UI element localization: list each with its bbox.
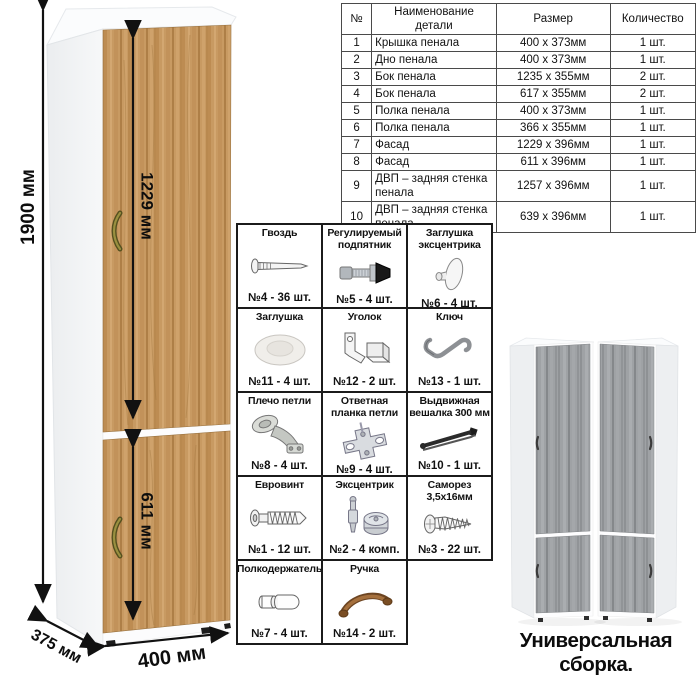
hardware-item-name: Эксцентрик	[334, 477, 394, 492]
hardware-item-name: Евровинт	[254, 477, 305, 492]
hardware-grid: Гвоздь№4 - 36 шт.Регулируемый подпятник№…	[236, 223, 493, 645]
hardware-item-name: Саморез 3,5х16мм	[408, 477, 491, 504]
table-cell: 617 х 355мм	[496, 86, 610, 103]
table-cell: 400 х 373мм	[496, 103, 610, 120]
hardware-item-name: Ручка	[349, 561, 380, 576]
parts-table-header-row: №Наименование деталиРазмерКоличество	[342, 4, 696, 35]
table-cell: 2 шт.	[610, 86, 696, 103]
table-cell: ДВП – задняя стенка пенала	[372, 171, 497, 202]
table-cell: 6	[342, 120, 372, 137]
table-cell: 8	[342, 154, 372, 171]
table-cell: 639 х 396мм	[496, 202, 610, 233]
table-row: 9ДВП – задняя стенка пенала1257 х 396мм1…	[342, 171, 696, 202]
parts-table-column-header: Размер	[496, 4, 610, 35]
table-cell: 1 шт.	[610, 137, 696, 154]
nail-icon	[249, 240, 311, 292]
lower-door-dimension-label: 611 мм	[138, 492, 157, 549]
hardware-item-count: №14 - 2 шт.	[333, 628, 396, 643]
hardware-item: Гвоздь№4 - 36 шт.	[236, 223, 323, 309]
table-cell: 7	[342, 137, 372, 154]
table-cell: 3	[342, 69, 372, 86]
table-cell: 2 шт.	[610, 69, 696, 86]
hardware-grid-row: Заглушка№11 - 4 шт.Уголок№12 - 2 шт.Ключ…	[236, 309, 493, 393]
table-cell: Фасад	[372, 154, 497, 171]
table-cell: 1235 х 355мм	[496, 69, 610, 86]
hardware-item-name: Ответная планка петли	[323, 393, 406, 420]
hardware-item: Плечо петли№8 - 4 шт.	[236, 391, 323, 477]
cabinet-illustration: 1900 мм 1229 мм 611 мм 375 мм 400 мм	[0, 0, 250, 683]
cap-icon	[252, 324, 308, 376]
hardware-item: Саморез 3,5х16мм№3 - 22 шт.	[406, 475, 493, 561]
table-cell: 366 х 355мм	[496, 120, 610, 137]
assembly-sheet: 1900 мм 1229 мм 611 мм 375 мм 400 мм №На…	[0, 0, 700, 683]
table-cell: Полка пенала	[372, 103, 497, 120]
depth-dimension-label: 375 мм	[28, 626, 84, 667]
table-cell: Бок пенала	[372, 69, 497, 86]
upper-door	[103, 25, 231, 432]
upper-door-dimension-label: 1229 мм	[138, 172, 157, 240]
table-cell: 1257 х 396мм	[496, 171, 610, 202]
table-cell: 611 х 396мм	[496, 154, 610, 171]
table-cell: 4	[342, 86, 372, 103]
gray-lower-handle-icon	[537, 565, 538, 577]
table-cell: 1 шт.	[610, 171, 696, 202]
hardware-item-count: №10 - 1 шт.	[418, 460, 481, 475]
hinge-plate-icon	[338, 420, 392, 464]
table-cell: Бок пенала	[372, 86, 497, 103]
hardware-item: Эксцентрик№2 - 4 комп.	[321, 475, 408, 561]
hardware-item-count: №3 - 22 шт.	[418, 544, 481, 559]
assembled-cabinet-left	[510, 338, 594, 622]
table-row: 3Бок пенала1235 х 355мм2 шт.	[342, 69, 696, 86]
hardware-item: Уголок№12 - 2 шт.	[321, 307, 408, 393]
table-cell: Фасад	[372, 137, 497, 154]
parts-table-column-header: Наименование детали	[372, 4, 497, 35]
hardware-item: Регулируемый подпятник№5 - 4 шт.	[321, 223, 408, 309]
hardware-item: Полкодержатель№7 - 4 шт.	[236, 559, 323, 645]
table-cell: 1229 х 396мм	[496, 137, 610, 154]
euro-screw-icon	[248, 492, 312, 544]
hardware-grid-row: Гвоздь№4 - 36 шт.Регулируемый подпятник№…	[236, 223, 493, 309]
hardware-item-count: №4 - 36 шт.	[248, 292, 311, 307]
table-cell: 1 шт.	[610, 202, 696, 233]
parts-table-body: 1Крышка пенала400 х 373мм1 шт.2Дно пенал…	[342, 35, 696, 233]
gray-lower-handle-icon	[650, 565, 651, 577]
hardware-grid-row: Евровинт№1 - 12 шт.Эксцентрик№2 - 4 комп…	[236, 477, 493, 561]
assembly-caption: Универсальная сборка.	[492, 629, 700, 677]
table-cell: 1 шт.	[610, 35, 696, 52]
table-cell: Дно пенала	[372, 52, 497, 69]
hinge-arm-icon	[251, 408, 309, 460]
lower-door	[103, 431, 230, 633]
table-row: 7Фасад1229 х 396мм1 шт.	[342, 137, 696, 154]
hardware-item-count: №2 - 4 комп.	[329, 544, 399, 559]
hardware-item-name: Уголок	[347, 309, 383, 324]
hardware-item: Ключ№13 - 1 шт.	[406, 307, 493, 393]
table-row: 6Полка пенала366 х 355мм1 шт.	[342, 120, 696, 137]
table-cell: 400 х 373мм	[496, 35, 610, 52]
pullout-hanger-icon	[419, 420, 481, 461]
hardware-item: Заглушка эксцентрика№6 - 4 шт.	[406, 223, 493, 309]
parts-table-column-header: Количество	[610, 4, 696, 35]
table-cell: 1	[342, 35, 372, 52]
hardware-grid-row: Плечо петли№8 - 4 шт.Ответная планка пет…	[236, 393, 493, 477]
assembled-cabinet-right	[598, 338, 678, 622]
hardware-item-name: Регулируемый подпятник	[323, 225, 406, 252]
hardware-item: Евровинт№1 - 12 шт.	[236, 475, 323, 561]
hardware-item-name: Гвоздь	[261, 225, 298, 240]
cabinet-side-panel	[47, 29, 103, 646]
parts-table-column-header: №	[342, 4, 372, 35]
table-row: 2Дно пенала400 х 373мм1 шт.	[342, 52, 696, 69]
hex-key-icon	[422, 324, 478, 376]
table-cell: Крышка пенала	[372, 35, 497, 52]
hardware-item-count: №7 - 4 шт.	[251, 628, 307, 643]
hardware-item-name: Выдвижная вешалка 300 мм	[408, 393, 491, 420]
gray-upper-handle-icon	[650, 437, 651, 449]
hardware-item: Ответная планка петли№9 - 4 шт.	[321, 391, 408, 477]
table-cell: 5	[342, 103, 372, 120]
table-cell: 1 шт.	[610, 52, 696, 69]
handle-icon	[335, 576, 395, 628]
width-dimension-label: 400 мм	[136, 642, 207, 673]
hardware-item-count: №11 - 4 шт.	[248, 376, 310, 391]
table-row: 1Крышка пенала400 х 373мм1 шт.	[342, 35, 696, 52]
table-cell: 2	[342, 52, 372, 69]
hardware-item-count: №8 - 4 шт.	[251, 460, 307, 475]
table-cell: 1 шт.	[610, 120, 696, 137]
assembled-cabinets-illustration	[492, 333, 700, 629]
corner-bracket-icon	[337, 324, 393, 376]
hardware-item-count: №12 - 2 шт.	[333, 376, 396, 391]
table-row: 5Полка пенала400 х 373мм1 шт.	[342, 103, 696, 120]
hardware-item: Выдвижная вешалка 300 мм№10 - 1 шт.	[406, 391, 493, 477]
hardware-item: Ручка№14 - 2 шт.	[321, 559, 408, 645]
table-cell: 400 х 373мм	[496, 52, 610, 69]
hardware-item-name: Заглушка	[255, 309, 304, 324]
table-row: 4Бок пенала617 х 355мм2 шт.	[342, 86, 696, 103]
table-cell: Полка пенала	[372, 120, 497, 137]
table-row: 8Фасад611 х 396мм1 шт.	[342, 154, 696, 171]
adjustable-foot-icon	[336, 252, 394, 294]
cam-cap-icon	[430, 252, 470, 298]
hardware-grid-row: Полкодержатель№7 - 4 шт.Ручка№14 - 2 шт.	[236, 561, 493, 645]
parts-table: №Наименование деталиРазмерКоличество 1Кр…	[341, 3, 696, 233]
cam-lock-icon	[338, 492, 392, 544]
table-cell: 1 шт.	[610, 154, 696, 171]
hardware-item-name: Полкодержатель	[236, 561, 323, 576]
hardware-item-count: №1 - 12 шт.	[248, 544, 311, 559]
table-cell: 9	[342, 171, 372, 202]
hardware-item-name: Заглушка эксцентрика	[408, 225, 491, 252]
hardware-item: Заглушка№11 - 4 шт.	[236, 307, 323, 393]
table-cell: 1 шт.	[610, 103, 696, 120]
hardware-item-count: №13 - 1 шт.	[418, 376, 481, 391]
gray-upper-handle-icon	[537, 437, 538, 449]
shelf-pin-icon	[255, 576, 305, 628]
height-dimension-label: 1900 мм	[18, 169, 39, 245]
hardware-item-name: Ключ	[435, 309, 464, 324]
screw-icon	[422, 504, 478, 545]
hardware-item-name: Плечо петли	[247, 393, 312, 408]
